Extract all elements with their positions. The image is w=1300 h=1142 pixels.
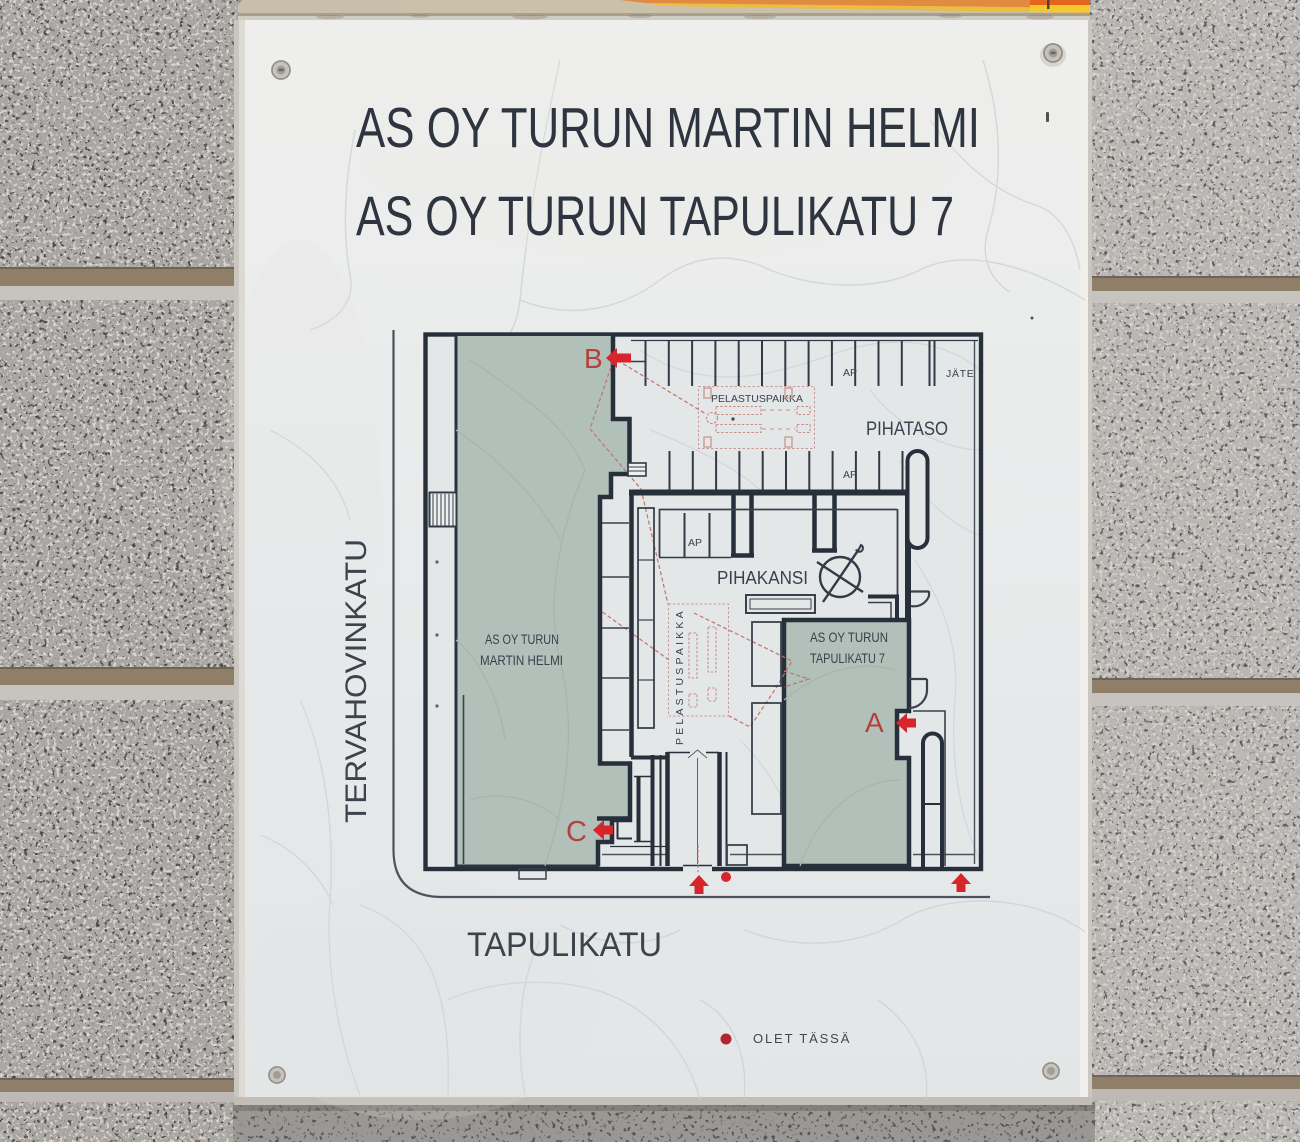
svg-text:OLET TÄSSÄ: OLET TÄSSÄ xyxy=(753,1031,851,1046)
svg-text:AS OY TURUN TAPULIKATU 7: AS OY TURUN TAPULIKATU 7 xyxy=(356,184,954,247)
svg-text:TAPULIKATU 7: TAPULIKATU 7 xyxy=(810,650,885,666)
svg-text:AP: AP xyxy=(688,537,702,549)
svg-text:B: B xyxy=(584,343,603,374)
svg-text:TERVAHOVINKATU: TERVAHOVINKATU xyxy=(340,539,373,823)
svg-text:PIHAKANSI: PIHAKANSI xyxy=(717,568,808,588)
svg-text:MARTIN HELMI: MARTIN HELMI xyxy=(480,652,563,668)
svg-text:PIHATASO: PIHATASO xyxy=(866,419,948,440)
svg-text:AS OY TURUN: AS OY TURUN xyxy=(810,629,888,645)
svg-text:AS OY TURUN MARTIN HELMI: AS OY TURUN MARTIN HELMI xyxy=(356,96,980,160)
svg-text:AS OY TURUN: AS OY TURUN xyxy=(485,631,559,647)
svg-text:TAPULIKATU: TAPULIKATU xyxy=(467,926,662,964)
svg-text:C: C xyxy=(566,816,587,848)
svg-text:AP: AP xyxy=(843,367,857,379)
svg-text:PELASTUSPAIKKA: PELASTUSPAIKKA xyxy=(674,608,686,745)
svg-text:JÄTE: JÄTE xyxy=(946,368,974,380)
svg-text:AP: AP xyxy=(843,469,857,481)
svg-text:PELASTUSPAIKKA: PELASTUSPAIKKA xyxy=(711,393,803,405)
svg-text:A: A xyxy=(865,707,884,738)
